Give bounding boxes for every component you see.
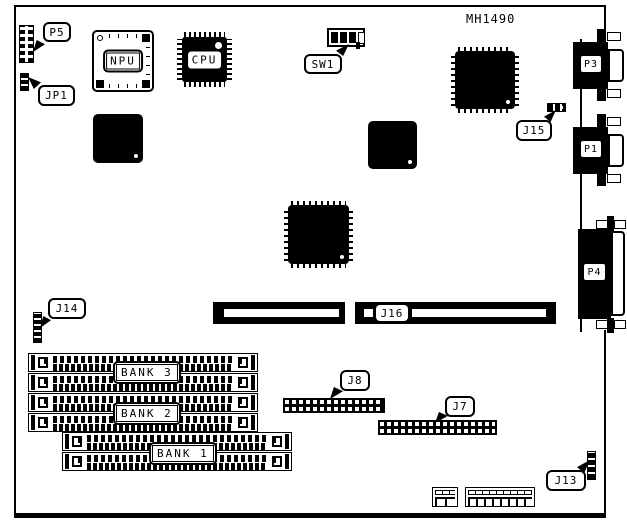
- j8-pin-header: [283, 398, 385, 413]
- isa-slot-1-key: [224, 309, 339, 317]
- p3-label-box: P3: [581, 56, 601, 72]
- simm-latch: [238, 377, 248, 388]
- p5-callout-label: P5: [49, 27, 64, 38]
- simm-pins: [53, 424, 233, 431]
- p4-mount-tab-bottom: [607, 318, 614, 333]
- part-number: MH1490: [466, 12, 515, 26]
- p4-label-box: P4: [584, 264, 605, 280]
- j7-pin-header: [378, 420, 497, 435]
- j13-callout-label: J13: [555, 475, 578, 486]
- simm-latch: [272, 456, 282, 467]
- simm-latch: [72, 436, 82, 447]
- p1-mount-tab-bottom: [597, 172, 606, 186]
- p3-connector: P3: [573, 29, 627, 101]
- j8-callout-label: J8: [347, 375, 362, 386]
- jp1-callout: JP1: [38, 85, 75, 106]
- bank2-label-box: BANK 2: [113, 402, 181, 425]
- plcc-chip-2-pin1-dot: [408, 160, 412, 164]
- bottom-connector-wide-top-row: [468, 490, 532, 495]
- sw1-callout: SW1: [304, 54, 342, 74]
- j15-callout-label: J15: [523, 125, 546, 136]
- sw1-switch-3: [349, 32, 356, 43]
- qfp-chip-1-body: [455, 51, 515, 109]
- isa-slot-2-j16: J16: [355, 302, 556, 324]
- bank2-label: BANK 2: [116, 405, 178, 422]
- j8-callout: J8: [340, 370, 370, 391]
- sw1-callout-label: SW1: [312, 59, 335, 70]
- npu-label-box: NPU: [103, 50, 143, 73]
- j15-pin1-dot: [560, 106, 563, 109]
- cpu-pins-right: [227, 39, 232, 80]
- simm-latch: [38, 397, 48, 408]
- simm-latch: [272, 436, 282, 447]
- sw1-switch-1: [331, 32, 338, 43]
- npu-pin-ticks-top: [109, 34, 137, 38]
- p3-mount-tab-top: [597, 29, 606, 43]
- simm-latch: [238, 397, 248, 408]
- p5-pin-header: [19, 25, 34, 63]
- cpu-label-box: CPU: [188, 51, 222, 68]
- npu-corner-mark: [142, 80, 150, 88]
- motherboard-diagram: MH1490 P5 JP1 NPU CPU: [0, 0, 627, 527]
- bank3-label: BANK 3: [116, 364, 178, 381]
- p4-connector: P4: [578, 216, 627, 333]
- isa-slot-1: [213, 302, 345, 324]
- simm-end-bar: [31, 415, 35, 430]
- j7-pin-header-divider: [380, 426, 495, 429]
- simm-end-bar: [65, 454, 69, 469]
- npu-corner-mark: [96, 80, 104, 88]
- j15-jumper: [547, 103, 566, 112]
- simm-latch: [38, 357, 48, 368]
- simm-pins: [87, 435, 267, 442]
- j14-callout-label: J14: [56, 303, 79, 314]
- qfp-chip-2-pins-right: [349, 208, 353, 261]
- j16-label: J16: [381, 307, 404, 320]
- npu-pin-ticks-right: [146, 47, 150, 75]
- npu-label: NPU: [106, 53, 140, 70]
- npu-pin-ticks-bottom: [109, 84, 137, 88]
- bank1-label: BANK 1: [152, 445, 214, 462]
- qfp-chip-2-body: [288, 205, 349, 264]
- simm-latch: [38, 377, 48, 388]
- j13-pin-header: [587, 451, 596, 480]
- p1-mount-tab-top: [597, 114, 606, 128]
- simm-end-bar: [31, 395, 35, 410]
- simm-end-bar: [65, 434, 69, 449]
- npu-corner-mark: [142, 34, 150, 42]
- j14-callout: J14: [48, 298, 86, 319]
- simm-end-bar: [31, 355, 35, 370]
- simm-end-bar: [251, 355, 255, 370]
- qfp-chip-1-pins-bottom: [458, 109, 512, 113]
- npu-pin1-circle: [97, 35, 103, 41]
- plcc-chip-1: [93, 114, 143, 163]
- simm-end-bar: [251, 395, 255, 410]
- j15-callout: J15: [516, 120, 552, 141]
- sw1-switch-2: [340, 32, 347, 43]
- simm-latch: [72, 456, 82, 467]
- cpu-pin1-dot: [215, 42, 222, 49]
- simm-end-bar: [251, 375, 255, 390]
- simm-end-bar: [251, 415, 255, 430]
- p1-screw-bottom: [607, 174, 621, 183]
- simm-latch: [238, 357, 248, 368]
- plcc-chip-1-pin1-dot: [134, 154, 138, 158]
- simm-latch: [38, 417, 48, 428]
- qfp-chip-1: [451, 47, 519, 113]
- cpu-chip: CPU: [177, 32, 232, 87]
- p4-screw-top-right: [614, 220, 626, 229]
- p4-shell: [611, 231, 625, 316]
- qfp-chip-1-pins-right: [515, 54, 519, 106]
- p3-screw-top: [607, 32, 621, 41]
- board-edge-right-bottom: [604, 330, 606, 518]
- p4-label: P4: [587, 267, 601, 278]
- simm-end-bar: [285, 434, 289, 449]
- bottom-connector-wide-teeth: [468, 497, 532, 506]
- bank1-label-box: BANK 1: [149, 442, 217, 465]
- j13-callout: J13: [546, 470, 586, 491]
- qfp-chip-2-pin1-dot: [340, 255, 344, 259]
- simm-end-bar: [285, 454, 289, 469]
- cpu-pins-bottom: [184, 82, 225, 87]
- p1-label: P1: [584, 144, 598, 155]
- simm-pins: [53, 384, 233, 391]
- p1-connector: P1: [573, 114, 627, 186]
- p1-label-box: P1: [581, 141, 601, 157]
- isa-slot-2-key: [412, 309, 546, 317]
- isa-slot-2-key-square: [364, 309, 373, 317]
- bottom-connector-small: [432, 487, 458, 507]
- qfp-chip-2-pins-bottom: [291, 264, 346, 268]
- p3-mount-tab-bottom: [597, 87, 606, 101]
- j16-label-box: J16: [376, 305, 408, 321]
- jp1-callout-label: JP1: [45, 90, 68, 101]
- p3-screw-bottom: [607, 89, 621, 98]
- plcc-chip-2: [368, 121, 417, 169]
- p4-screw-bottom-right: [614, 320, 626, 329]
- qfp-chip-2: [284, 201, 353, 268]
- simm-latch: [238, 417, 248, 428]
- jp1-jumper: [20, 73, 29, 91]
- bottom-connector-wide: [465, 487, 535, 507]
- npu-chip: NPU: [92, 30, 154, 92]
- p5-callout: P5: [43, 22, 71, 42]
- cpu-label: CPU: [192, 53, 218, 66]
- simm-end-bar: [31, 375, 35, 390]
- sw1-tick-mark: [356, 42, 360, 49]
- bank3-label-box: BANK 3: [113, 361, 181, 384]
- p3-shell: [608, 49, 624, 82]
- p3-label: P3: [584, 59, 598, 70]
- j7-callout-label: J7: [452, 401, 467, 412]
- p1-shell: [608, 134, 624, 167]
- bottom-connector-small-teeth: [435, 497, 455, 506]
- bottom-connector-small-top-row: [435, 490, 455, 495]
- p1-screw-top: [607, 117, 621, 126]
- j7-callout: J7: [445, 396, 475, 417]
- j8-pin-header-divider: [285, 404, 383, 407]
- qfp-chip-1-pin1-dot: [506, 100, 510, 104]
